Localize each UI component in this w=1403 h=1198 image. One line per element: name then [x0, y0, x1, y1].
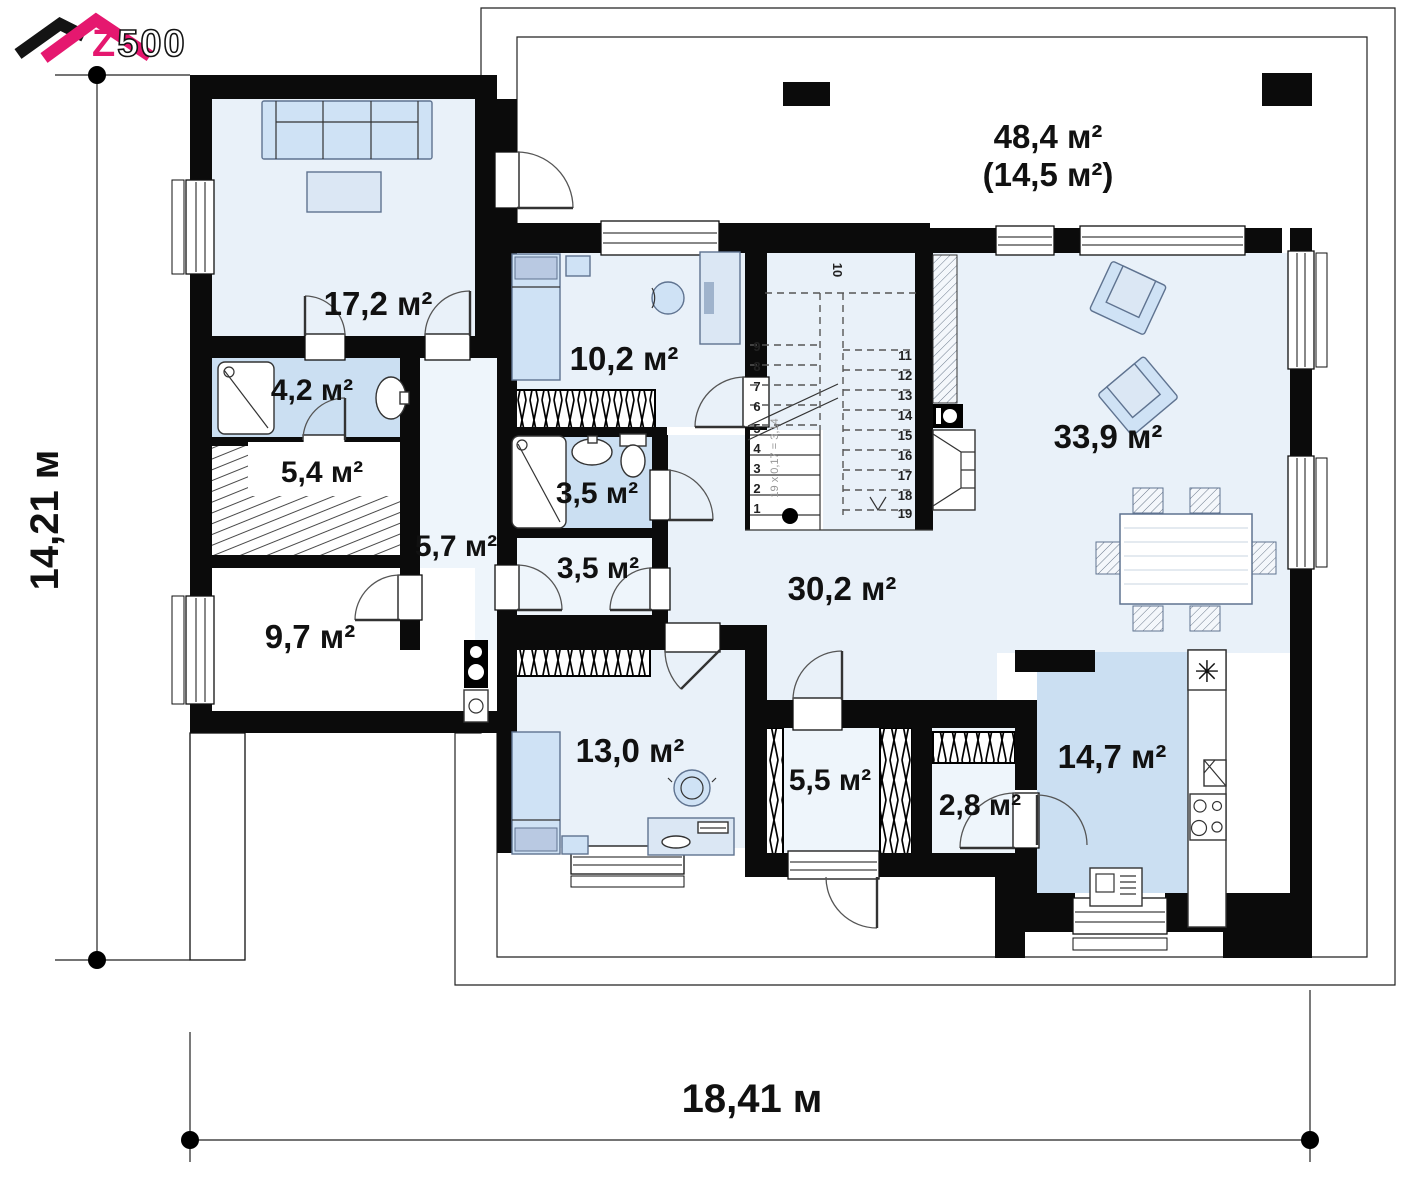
boiler — [464, 640, 488, 722]
svg-text:12: 12 — [898, 368, 912, 383]
fireplace — [933, 430, 975, 510]
svg-text:18: 18 — [898, 488, 912, 503]
bed-bedroom-10-2 — [512, 254, 560, 380]
svg-text:9: 9 — [753, 339, 760, 354]
z500-logo: Z500 — [18, 20, 187, 65]
label-hall-3-5: 3,5 м² — [557, 552, 639, 585]
nightstand-13-0 — [562, 836, 588, 854]
window-left-2 — [172, 596, 214, 704]
sofa — [262, 101, 432, 159]
window-top-bedroom — [601, 221, 719, 255]
window-top-living-2 — [1080, 226, 1245, 255]
svg-text:5,4 м²: 5,4 м² — [281, 456, 363, 489]
logo-text: Z500 — [92, 23, 187, 65]
label-tech-5-4: 5,4 м² — [248, 442, 400, 496]
label-room-17-2: 17,2 м² — [324, 285, 433, 322]
svg-text:11: 11 — [898, 348, 912, 363]
porch-strip — [190, 733, 245, 960]
label-terrace-area: 48,4 м² — [994, 118, 1103, 155]
svg-text:5: 5 — [753, 421, 760, 436]
svg-text:16: 16 — [898, 448, 912, 463]
svg-text:3: 3 — [753, 461, 760, 476]
entry-door-sidelight — [788, 851, 879, 879]
bed-bedroom-13-0 — [512, 732, 560, 854]
svg-text:6: 6 — [753, 399, 760, 414]
nightstand-10-2 — [566, 256, 590, 276]
label-bath-3-5: 3,5 м² — [556, 477, 638, 510]
front-door — [495, 152, 573, 208]
floor-plan-page: 19 x 0,17 = 3,14 1 2 3 4 5 6 7 8 9 10 11… — [0, 0, 1403, 1198]
label-terrace-area-brackets: (14,5 м²) — [983, 156, 1114, 193]
terrace-column-left — [783, 82, 830, 106]
kitchen-sink-icon: ✳ — [1194, 656, 1219, 689]
label-bedroom-13-0: 13,0 м² — [576, 732, 685, 769]
label-corridor-5-7: 5,7 м² — [415, 530, 497, 563]
shelf-pantry-2-8 — [933, 732, 1015, 763]
window-left-1 — [172, 180, 214, 274]
coffee-table — [307, 172, 381, 212]
window-right-2 — [1288, 456, 1327, 569]
label-hall-30-2: 30,2 м² — [788, 570, 897, 607]
desk-chair-10-2 — [652, 282, 684, 314]
shower-bath-4-2 — [218, 362, 274, 434]
svg-text:1: 1 — [753, 501, 760, 516]
svg-text:2: 2 — [753, 481, 760, 496]
label-wardrobe-5-5: 5,5 м² — [789, 764, 871, 797]
desk-bedroom-13-0 — [648, 818, 734, 855]
svg-text:17: 17 — [898, 468, 912, 483]
oven-icon — [1090, 868, 1142, 906]
window-right-1 — [1288, 251, 1327, 369]
stove-flue — [933, 404, 963, 428]
terrace-column-right — [1262, 73, 1312, 106]
svg-text:10: 10 — [830, 263, 845, 277]
label-room-9-7: 9,7 м² — [265, 618, 355, 655]
floor-plan-drawing: 19 x 0,17 = 3,14 1 2 3 4 5 6 7 8 9 10 11… — [0, 0, 1403, 1198]
dimension-height: 14,21 м — [23, 450, 67, 591]
svg-text:15: 15 — [898, 428, 912, 443]
svg-text:19: 19 — [898, 506, 912, 521]
svg-text:4: 4 — [753, 441, 761, 456]
tv-cabinet-living — [933, 255, 957, 403]
svg-text:8: 8 — [753, 359, 760, 374]
svg-text:14: 14 — [898, 408, 913, 423]
window-top-living-1 — [996, 226, 1054, 255]
label-pantry-2-8: 2,8 м² — [939, 789, 1021, 822]
label-bedroom-10-2: 10,2 м² — [570, 340, 679, 377]
svg-text:13: 13 — [898, 388, 912, 403]
wardrobe-bedroom-10-2 — [512, 390, 655, 428]
stair-formula: 19 x 0,17 = 3,14 — [769, 418, 781, 497]
label-kitchen-14-7: 14,7 м² — [1058, 738, 1167, 775]
stair-reference-dot — [782, 508, 798, 524]
toilet — [620, 434, 646, 477]
label-bath-4-2: 4,2 м² — [271, 374, 353, 407]
fridge-icon — [1204, 760, 1226, 786]
main-entrance-door — [826, 877, 877, 928]
hob-icon — [1190, 794, 1226, 840]
wardrobe-5-5-right — [880, 728, 912, 855]
dimension-width: 18,41 м — [682, 1077, 823, 1121]
svg-text:7: 7 — [753, 379, 760, 394]
label-living-33-9: 33,9 м² — [1054, 418, 1163, 455]
